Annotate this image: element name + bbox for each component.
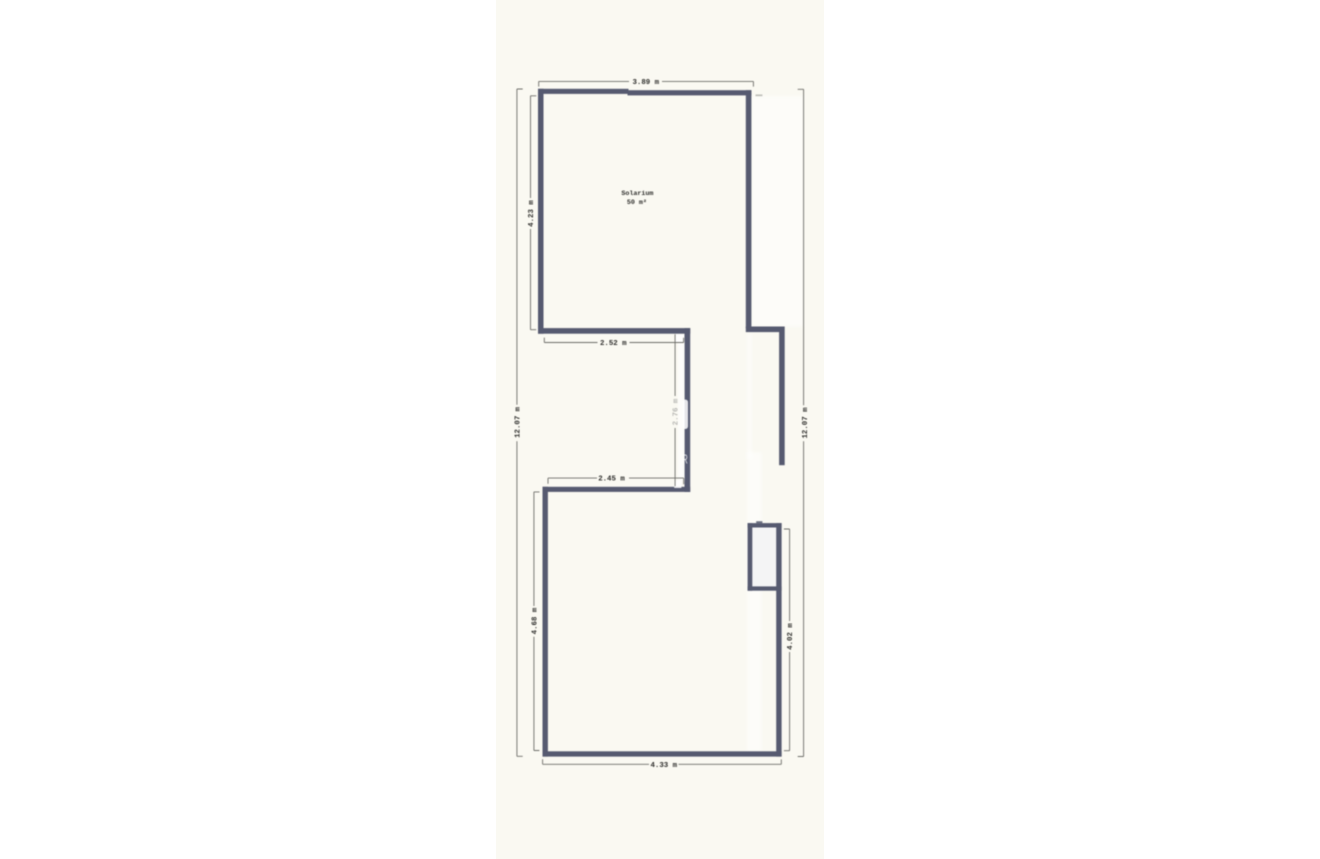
svg-text:12.07 m: 12.07 m <box>515 406 523 438</box>
svg-text:2.45 m: 2.45 m <box>598 476 625 484</box>
svg-text:2.52 m: 2.52 m <box>600 340 627 348</box>
svg-text:2.76 m: 2.76 m <box>673 398 681 425</box>
svg-text:50 m²: 50 m² <box>627 199 647 207</box>
svg-text:Solarium: Solarium <box>621 190 653 198</box>
svg-text:12.07 m: 12.07 m <box>802 407 810 439</box>
svg-text:4.23 m: 4.23 m <box>528 200 536 227</box>
svg-text:R: R <box>682 454 688 467</box>
svg-text:4.68 m: 4.68 m <box>532 607 540 634</box>
svg-text:3.89 m: 3.89 m <box>632 79 659 87</box>
svg-text:4.02 m: 4.02 m <box>787 623 795 650</box>
svg-text:4.33 m: 4.33 m <box>650 762 677 770</box>
